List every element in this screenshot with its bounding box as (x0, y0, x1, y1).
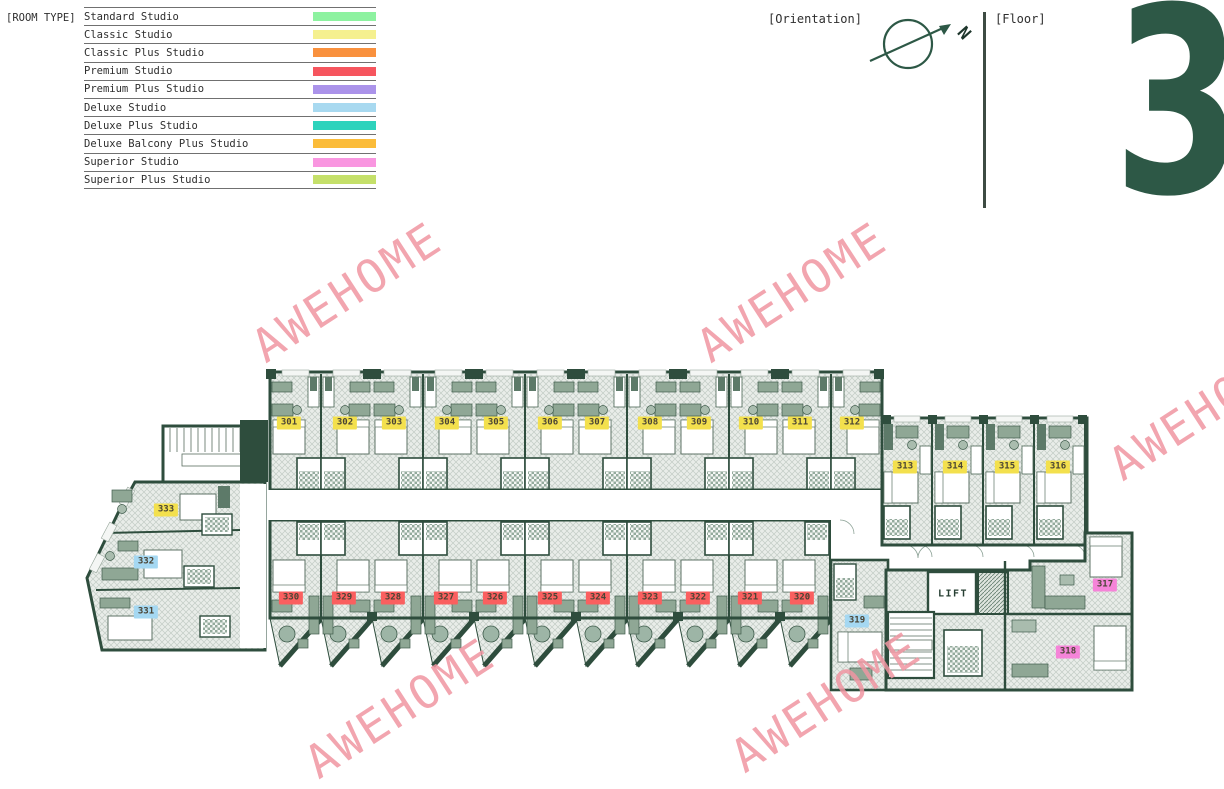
room-label-303: 303 (382, 417, 406, 430)
room-label-301: 301 (277, 417, 301, 430)
room-label-317: 317 (1093, 579, 1117, 592)
room-label-321: 321 (738, 592, 762, 605)
left-wing (87, 420, 268, 650)
room-label-306: 306 (538, 417, 562, 430)
room-label-324: 324 (586, 592, 610, 605)
room-label-311: 311 (788, 417, 812, 430)
room-label-304: 304 (435, 417, 459, 430)
room-label-323: 323 (638, 592, 662, 605)
room-label-319: 319 (845, 615, 869, 628)
room-label-327: 327 (434, 592, 458, 605)
room-label-329: 329 (332, 592, 356, 605)
room-label-310: 310 (739, 417, 763, 430)
room-label-307: 307 (585, 417, 609, 430)
room-label-315: 315 (995, 461, 1019, 474)
room-label-302: 302 (333, 417, 357, 430)
stairs-landing (182, 454, 244, 466)
room-label-313: 313 (893, 461, 917, 474)
room-label-326: 326 (483, 592, 507, 605)
room-label-312: 312 (840, 417, 864, 430)
room-label-330: 330 (279, 592, 303, 605)
room-label-322: 322 (686, 592, 710, 605)
lift-label: LIFT (938, 589, 968, 600)
room-label-316: 316 (1046, 461, 1070, 474)
room-label-331: 331 (134, 606, 158, 619)
room-label-318: 318 (1056, 646, 1080, 659)
room-label-333: 333 (154, 504, 178, 517)
room-label-305: 305 (484, 417, 508, 430)
room-label-328: 328 (381, 592, 405, 605)
room-label-314: 314 (943, 461, 967, 474)
room-label-332: 332 (134, 556, 158, 569)
room-label-325: 325 (538, 592, 562, 605)
room-label-309: 309 (687, 417, 711, 430)
room-label-320: 320 (790, 592, 814, 605)
lift-shaft (978, 572, 1008, 614)
room-label-308: 308 (638, 417, 662, 430)
right-wing-top (882, 415, 1087, 557)
floor-plan (0, 0, 1224, 719)
